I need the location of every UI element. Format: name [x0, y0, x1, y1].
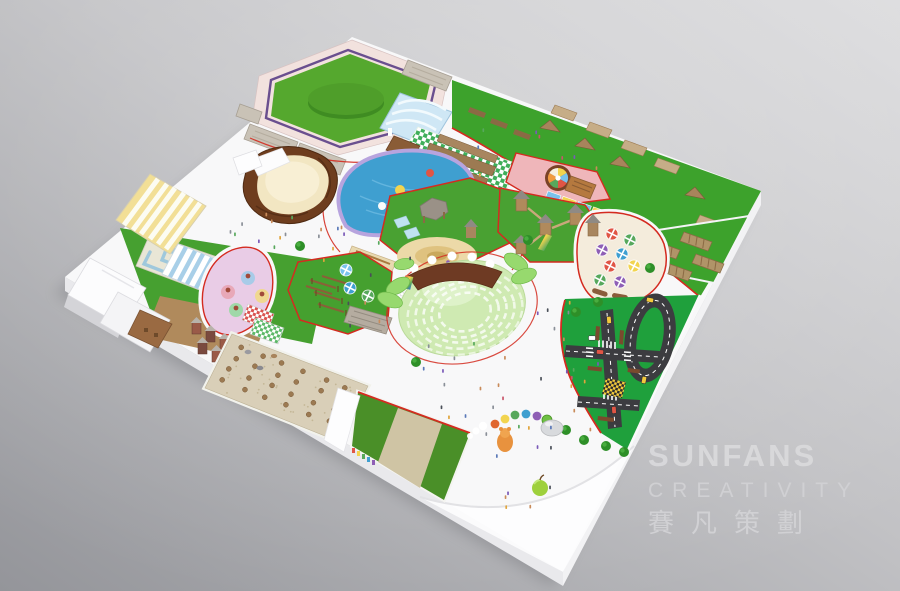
pool-float-swan — [378, 202, 386, 210]
farm-animal — [245, 350, 252, 354]
farm-animal — [271, 354, 277, 358]
pool-float-red — [426, 169, 434, 177]
rope-course — [288, 252, 392, 334]
dome-sculpture — [541, 420, 563, 436]
render-stage: SUNFANS CREATIVITY 賽凡策劃 — [0, 0, 900, 591]
brand-logo-text: SUNFANS — [648, 440, 888, 471]
brand-cjk-text: 賽凡策劃 — [648, 511, 888, 537]
farm-animal — [257, 366, 264, 370]
watermark: SUNFANS CREATIVITY 賽凡策劃 — [648, 440, 888, 537]
brand-subtitle-text: CREATIVITY — [648, 480, 888, 501]
